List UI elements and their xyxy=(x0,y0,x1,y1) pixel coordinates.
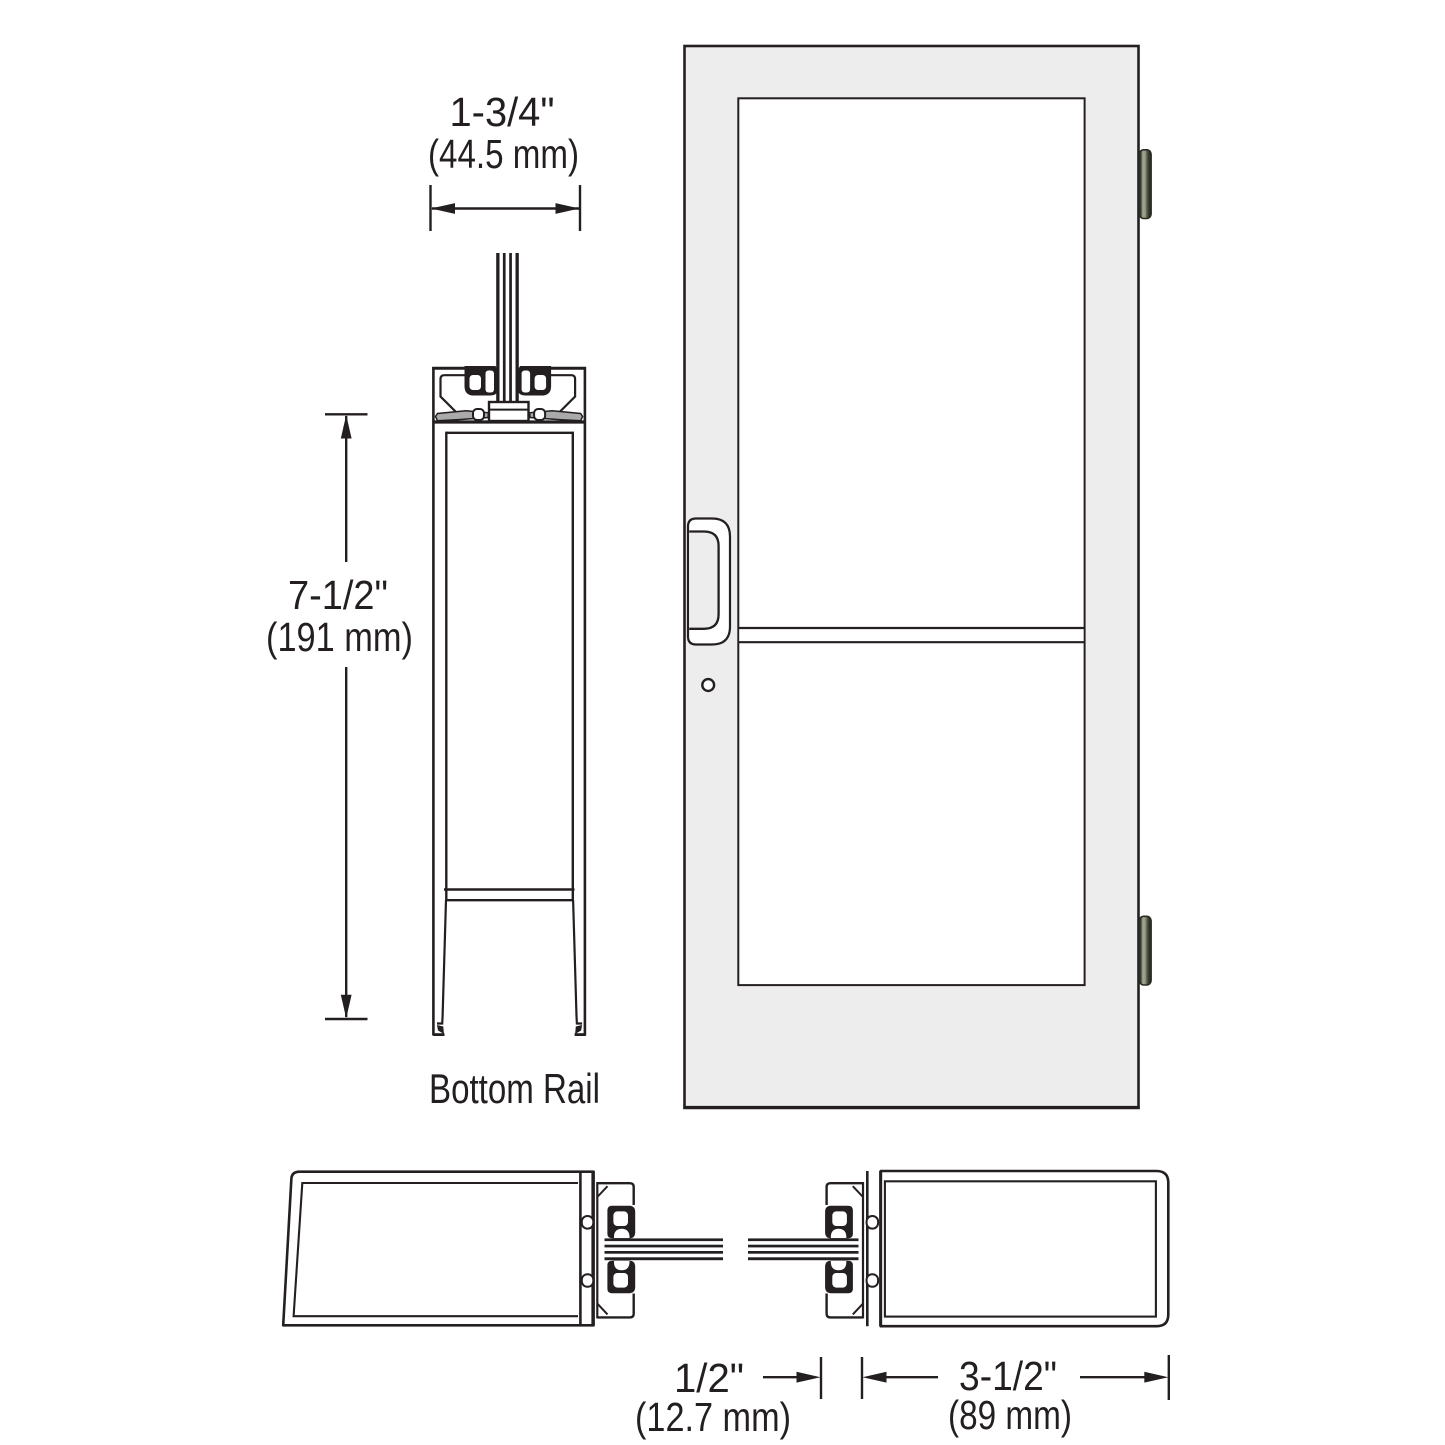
svg-text:(191 mm): (191 mm) xyxy=(266,614,413,660)
svg-text:1-3/4": 1-3/4" xyxy=(450,89,555,135)
svg-text:Bottom Rail: Bottom Rail xyxy=(429,1065,600,1112)
svg-text:(12.7 mm): (12.7 mm) xyxy=(635,1394,791,1440)
svg-text:(89 mm): (89 mm) xyxy=(948,1392,1072,1438)
svg-text:(44.5 mm): (44.5 mm) xyxy=(428,131,579,177)
svg-text:7-1/2": 7-1/2" xyxy=(288,572,388,618)
